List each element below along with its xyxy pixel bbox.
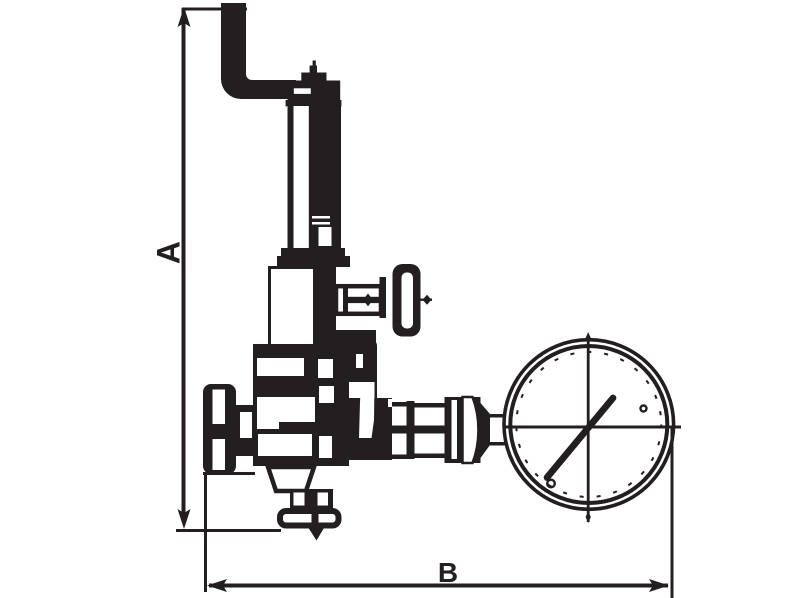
svg-text:B: B <box>438 557 458 588</box>
svg-text:A: A <box>151 241 187 264</box>
